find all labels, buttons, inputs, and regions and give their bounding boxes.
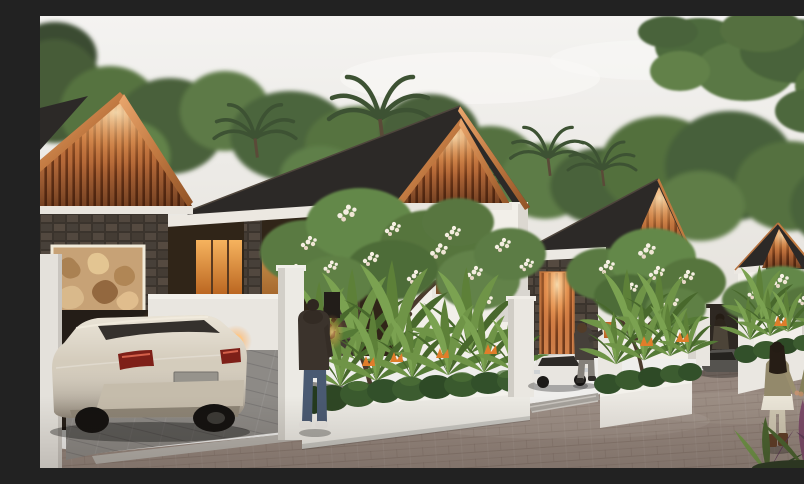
gate-pillar-2: [506, 296, 536, 397]
entrance-window: [196, 240, 242, 296]
vignette: [40, 396, 804, 468]
villa-complex-render: Dusk 3D architectural rendering of a row…: [40, 16, 804, 468]
